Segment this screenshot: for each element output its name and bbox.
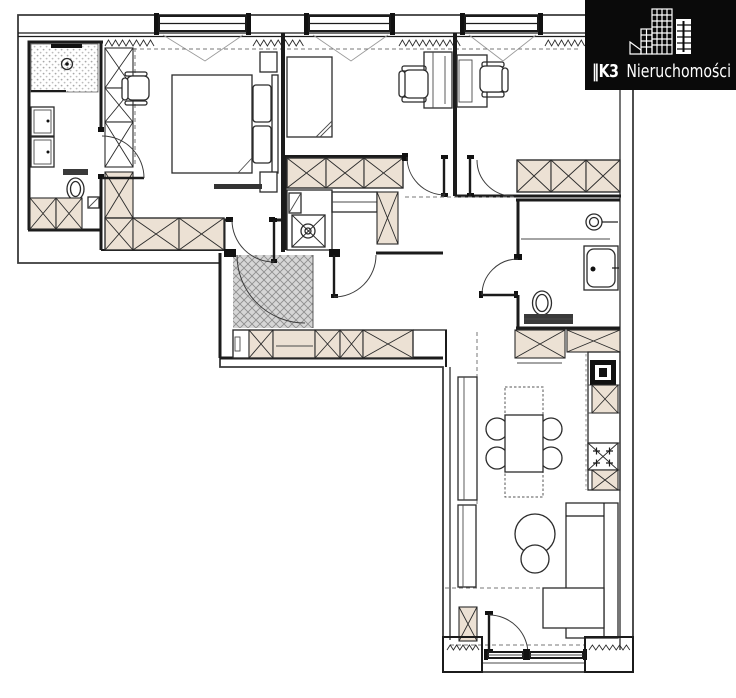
brand-name: Nieruchomości	[626, 62, 731, 82]
bathroom-1	[30, 44, 99, 229]
corridor-cabinet-row	[287, 158, 403, 188]
bathroom-cabinets	[30, 198, 82, 229]
dining-table	[505, 415, 543, 472]
brand-watermark: ‖K3 Nieruchomości	[585, 0, 736, 90]
headboard	[272, 75, 278, 173]
balcony-door	[485, 611, 528, 654]
pillow	[253, 85, 271, 122]
wardrobe	[517, 160, 620, 192]
dining-set	[486, 387, 562, 497]
wardrobe-column	[105, 48, 135, 167]
washing-machine	[292, 215, 325, 247]
nightstand	[260, 52, 277, 72]
pillar	[443, 637, 482, 672]
utility-shelf	[332, 192, 377, 212]
shower-towel-bar	[51, 44, 82, 48]
bathroom-2	[521, 214, 619, 324]
bathroom-2-door	[479, 254, 522, 298]
tv-wall-unit	[458, 377, 477, 500]
entrance-mat	[233, 255, 313, 328]
bathtub	[584, 246, 619, 290]
side-shelf	[88, 197, 99, 208]
pillow	[253, 126, 271, 163]
bedroom	[105, 48, 278, 250]
floor-plan-page: ‖K3 Nieruchomości	[0, 0, 736, 698]
shower-floor	[31, 44, 98, 92]
nightstand	[260, 172, 277, 192]
brand-text: ‖K3 Nieruchomości	[592, 62, 731, 82]
laundry-sink	[289, 193, 301, 213]
floor-plan-drawing: ‖K3 Nieruchomości	[0, 0, 736, 698]
office-2-door	[467, 155, 513, 197]
toilet	[63, 169, 88, 200]
laundry-closet	[287, 158, 403, 250]
ottoman	[543, 588, 604, 628]
washbasin	[586, 214, 618, 230]
pillar	[585, 637, 633, 672]
insulation-zigzag	[105, 40, 154, 46]
vanity-unit-2	[31, 137, 54, 167]
hob	[588, 443, 618, 470]
closet	[287, 57, 332, 137]
coffee-table	[521, 545, 549, 573]
hall-door	[331, 253, 376, 298]
office-1-door	[402, 153, 448, 197]
office-chair	[480, 62, 508, 97]
office-1	[287, 52, 452, 137]
toilet	[524, 291, 573, 324]
bed-bench	[214, 184, 262, 189]
double-bed	[172, 75, 278, 173]
wardrobe-row	[105, 218, 224, 250]
balcony-windows	[484, 649, 587, 660]
oven	[590, 360, 616, 385]
vanity-unit-1	[31, 107, 54, 136]
brand-prefix: ‖K3	[592, 62, 619, 82]
hallway-cabinet-row	[233, 330, 413, 358]
office-chair	[399, 66, 428, 102]
tv-wall-unit	[458, 505, 476, 587]
